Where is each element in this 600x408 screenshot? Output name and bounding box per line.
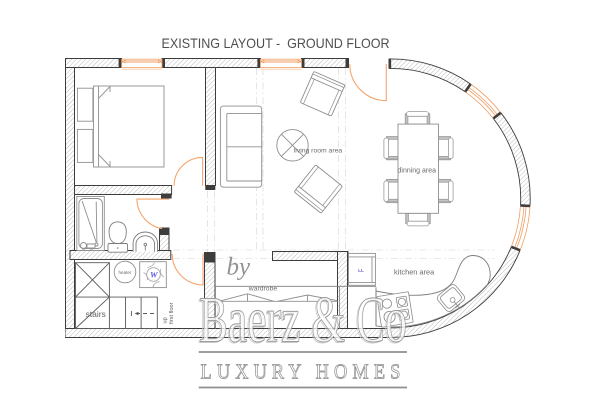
svg-text:by: by <box>227 254 252 281</box>
svg-text:kitchen area: kitchen area <box>394 267 435 276</box>
svg-text:Baerz & Co: Baerz & Co <box>199 284 407 357</box>
svg-text:LL: LL <box>358 268 364 274</box>
svg-text:dinning area: dinning area <box>398 167 437 174</box>
svg-text:first floor: first floor <box>169 302 175 324</box>
svg-text:EXISTING LAYOUT - GROUND FLOO: EXISTING LAYOUT - GROUND FLOOR <box>162 35 390 51</box>
svg-text:LUXURY HOMES: LUXURY HOMES <box>201 360 406 384</box>
svg-text:living room area: living room area <box>294 147 343 154</box>
svg-text:heater: heater <box>118 270 131 275</box>
svg-text:up: up <box>163 317 169 323</box>
svg-text:stairs: stairs <box>86 309 106 319</box>
